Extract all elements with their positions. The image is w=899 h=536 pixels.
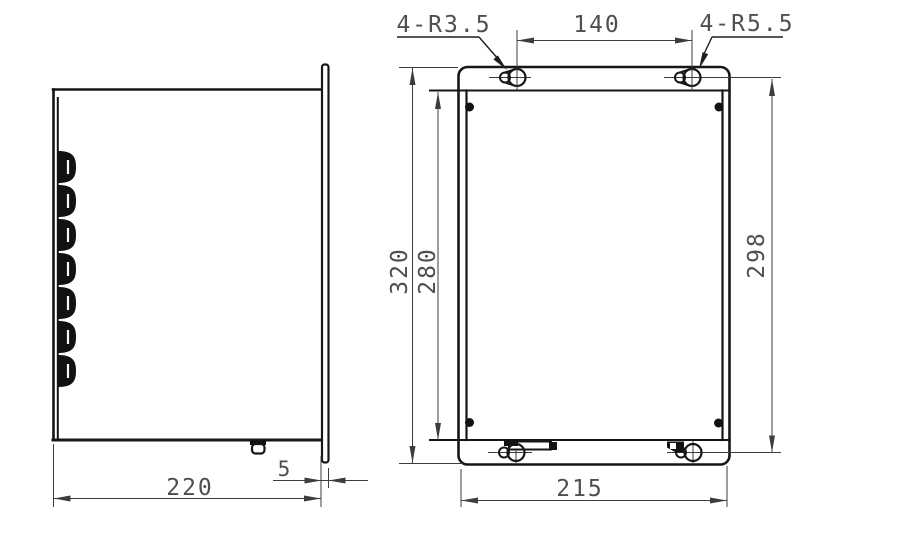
- arrow: [329, 478, 346, 484]
- dim-width: 215: [556, 476, 604, 502]
- dim-door-height: 280: [415, 247, 441, 295]
- hole-label-r35: 4-R3.5: [396, 12, 491, 38]
- latch-knob: [250, 441, 266, 454]
- dim-hole-spacing-vertical: 298: [744, 231, 770, 279]
- corner-screw: [465, 103, 474, 112]
- arrow: [435, 92, 441, 109]
- hinge-knuckles: [58, 151, 76, 387]
- arrow: [517, 38, 534, 44]
- arrow: [305, 478, 322, 484]
- arrow: [675, 38, 692, 44]
- clamp-end-block: [549, 442, 557, 450]
- latch-body: [252, 444, 265, 454]
- technical-drawing: 220 5: [0, 0, 899, 536]
- arrow: [769, 436, 775, 453]
- clamp-notch: [670, 443, 676, 449]
- arrow: [410, 446, 416, 463]
- label-leader-r55: 4-R5.5: [699, 11, 795, 69]
- corner-screw: [715, 103, 724, 112]
- arrow: [435, 423, 441, 440]
- corner-screw: [714, 419, 723, 428]
- arrow: [769, 79, 775, 96]
- corner-screw: [465, 418, 474, 427]
- mounting-flange-tab: [322, 65, 329, 463]
- hole-label-r55: 4-R5.5: [699, 11, 794, 37]
- arrow: [54, 496, 71, 502]
- side-view-dimensions: 220 5: [54, 444, 369, 507]
- dim-overall-height: 320: [387, 247, 413, 295]
- arrow: [710, 498, 727, 504]
- label-leader-r35: 4-R3.5: [396, 12, 507, 70]
- arrow: [304, 496, 321, 502]
- dim-flange-offset: 5: [278, 457, 293, 481]
- drawing-canvas: 220 5: [0, 0, 899, 536]
- arrow: [410, 68, 416, 85]
- side-view: [53, 65, 329, 463]
- front-view: [430, 67, 781, 465]
- leader-line: [479, 37, 499, 60]
- dim-depth: 220: [166, 475, 214, 501]
- arrow: [461, 498, 478, 504]
- dim-hole-spacing: 140: [573, 12, 621, 38]
- front-outline: [459, 67, 730, 465]
